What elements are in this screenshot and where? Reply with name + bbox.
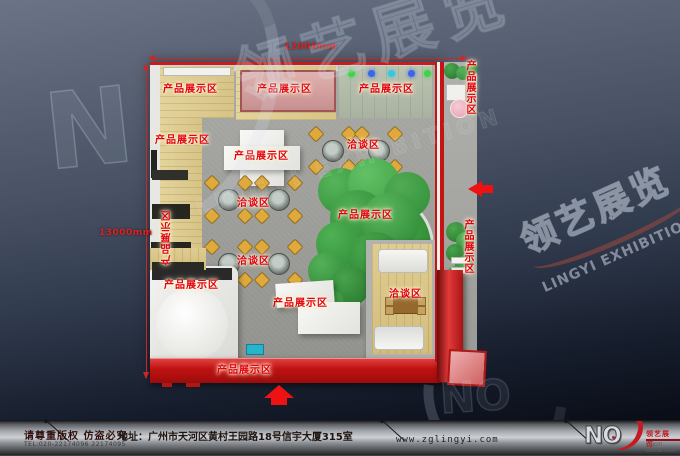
chair xyxy=(287,239,304,256)
chair xyxy=(254,175,271,192)
label-product-display-top-right: 产品展示区 xyxy=(359,84,414,96)
red-mark xyxy=(162,383,172,387)
sofa xyxy=(374,326,424,350)
label-product-display-bottom-center: 产品展示区 xyxy=(273,298,328,310)
label-product-display-corridor-mid: 产品展示区 xyxy=(461,219,473,274)
footer-website[interactable]: www.zglingyi.com xyxy=(396,435,499,445)
footer-tel: TEL:020-22174096 22174095 xyxy=(24,441,126,448)
spotlight-blue xyxy=(368,70,375,77)
spotlight-cyan xyxy=(388,70,395,77)
chair xyxy=(237,239,254,256)
footer-bar: 请尊重版权 仿盗必究 TEL:020-22174096 22174095 地址：… xyxy=(0,420,680,456)
chair xyxy=(308,126,325,143)
spotlight-green xyxy=(424,70,431,77)
dim-arrow-down xyxy=(143,372,149,379)
footer-logo-underline xyxy=(646,439,680,441)
label-negotiation-mid-1: 洽谈区 xyxy=(237,198,270,210)
round-table xyxy=(322,140,344,162)
chair xyxy=(387,126,404,143)
chair xyxy=(204,239,221,256)
chair xyxy=(237,208,254,225)
reception-round-desk xyxy=(156,288,228,360)
chair xyxy=(287,175,304,192)
teal-display-prop xyxy=(246,344,264,355)
entrance-arrow-right-stem xyxy=(482,185,493,193)
footer-logo-en: LINGYI EXHIBITION xyxy=(646,442,676,454)
meeting-chair xyxy=(417,306,426,315)
spotlight-green xyxy=(348,70,355,77)
bottom-wall-red-banner xyxy=(150,358,443,383)
entrance-arrow-right xyxy=(468,181,482,197)
label-product-display-corridor-top: 产品展示区 xyxy=(463,60,475,115)
footer-address: 地址：广州市天河区黄村王园路18号信宇大厦315室 xyxy=(118,428,353,443)
chair xyxy=(254,272,271,289)
spotlight-blue xyxy=(408,70,415,77)
footer-logo-j-swoosh-icon xyxy=(616,420,646,454)
left-lower-shelf xyxy=(152,262,204,270)
label-product-display-tree: 产品展示区 xyxy=(338,210,393,222)
footer-logo: NO 领艺展览 LINGYI EXHIBITION xyxy=(584,422,676,454)
red-mark xyxy=(186,383,200,387)
label-product-display-reception: 产品展示区 xyxy=(164,280,219,292)
label-product-display-banner: 产品展示区 xyxy=(217,365,272,377)
meeting-chair xyxy=(385,306,394,315)
label-negotiation-mid-2: 洽谈区 xyxy=(237,256,270,268)
label-negotiation-meeting-room: 洽谈区 xyxy=(389,289,422,301)
footer-copyright: 请尊重版权 仿盗必究 xyxy=(24,427,127,442)
round-table xyxy=(268,253,290,275)
entrance-arrow-bottom xyxy=(264,385,294,398)
chair xyxy=(237,272,254,289)
footer-logo-dot xyxy=(612,436,615,439)
round-table xyxy=(268,189,290,211)
dimension-top-value: 12000mm xyxy=(284,42,338,52)
label-negotiation-top-right: 洽谈区 xyxy=(347,140,380,152)
design-proposal-image: 12000mm 13000mm 产品展示区 产品展示区 产品展示区 产品展示区 … xyxy=(0,0,680,456)
chair xyxy=(308,159,325,176)
entrance-arrow-bottom-stem xyxy=(271,398,287,405)
chair xyxy=(287,208,304,225)
chair xyxy=(254,208,271,225)
dimension-side-value: 13000mm xyxy=(99,228,153,238)
chair xyxy=(254,239,271,256)
sofa xyxy=(378,249,428,273)
